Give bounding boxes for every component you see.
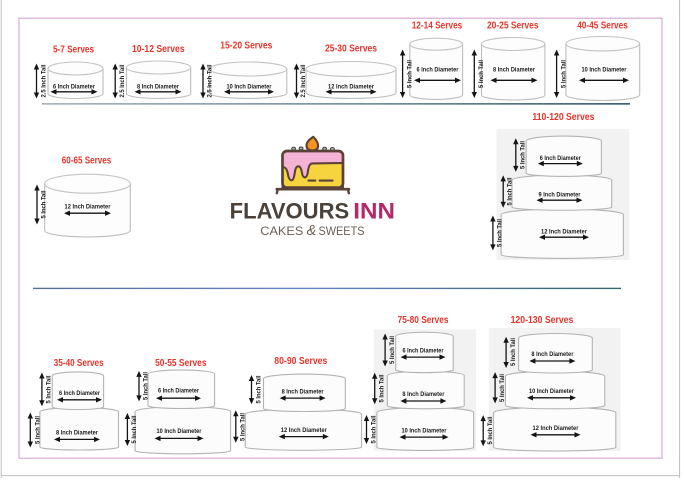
svg-text:FLAVOURS: FLAVOURS — [230, 199, 350, 224]
svg-text:12 Inch Diameter: 12 Inch Diameter — [328, 85, 375, 91]
svg-text:8 Inch Diameter: 8 Inch Diameter — [402, 392, 445, 398]
svg-text:5 Inch Tall: 5 Inch Tall — [561, 60, 567, 88]
svg-text:5 Inch Tall: 5 Inch Tall — [500, 374, 506, 402]
svg-text:8 Inch Diameter: 8 Inch Diameter — [137, 85, 180, 91]
svg-text:5 Inch Tall: 5 Inch Tall — [407, 60, 413, 88]
svg-text:INN: INN — [353, 199, 395, 224]
svg-text:6 Inch Diameter: 6 Inch Diameter — [59, 391, 101, 397]
svg-text:5 Inch Tall: 5 Inch Tall — [256, 375, 262, 403]
svg-text:6 Inch Diameter: 6 Inch Diameter — [540, 156, 582, 162]
svg-text:8 Inch Diameter: 8 Inch Diameter — [531, 352, 574, 358]
svg-text:5 Inch Tall: 5 Inch Tall — [511, 338, 517, 366]
svg-text:10 Inch Diameter: 10 Inch Diameter — [402, 429, 448, 435]
svg-text:12 Inch Diameter: 12 Inch Diameter — [533, 426, 580, 432]
svg-text:10-12 Serves: 10-12 Serves — [132, 44, 185, 55]
svg-text:6 Inch Diameter: 6 Inch Diameter — [417, 68, 460, 74]
svg-text:12-14 Serves: 12-14 Serves — [412, 21, 463, 32]
svg-text:5 Inch Tall: 5 Inch Tall — [520, 141, 526, 169]
svg-text:20-25 Serves: 20-25 Serves — [487, 21, 539, 32]
svg-text:5 Inch Tall: 5 Inch Tall — [35, 416, 41, 444]
svg-text:5 Inch Tall: 5 Inch Tall — [379, 374, 385, 402]
svg-text:110-120 Serves: 110-120 Serves — [532, 112, 594, 123]
svg-text:5 Inch Tall: 5 Inch Tall — [144, 372, 150, 400]
svg-text:8 Inch Diameter: 8 Inch Diameter — [493, 68, 536, 74]
svg-text:12 Inch Diameter: 12 Inch Diameter — [65, 205, 112, 211]
svg-text:10 Inch Diameter: 10 Inch Diameter — [582, 68, 628, 74]
svg-text:80-90 Serves: 80-90 Serves — [274, 356, 327, 367]
svg-text:5-7 Serves: 5-7 Serves — [53, 45, 94, 56]
svg-text:5 Inch Tall: 5 Inch Tall — [488, 416, 494, 444]
svg-text:5 Inch Tall: 5 Inch Tall — [42, 190, 48, 218]
svg-text:&: & — [307, 223, 317, 239]
svg-text:35-40 Serves: 35-40 Serves — [54, 358, 104, 369]
svg-text:15-20 Serves: 15-20 Serves — [220, 41, 272, 52]
svg-text:5 Inch Tall: 5 Inch Tall — [498, 219, 504, 247]
svg-text:2.5 Inch Tall: 2.5 Inch Tall — [41, 64, 47, 97]
svg-text:2.5 Inch Tall: 2.5 Inch Tall — [120, 64, 126, 97]
svg-text:75-80 Serves: 75-80 Serves — [398, 315, 449, 326]
svg-text:50-55 Serves: 50-55 Serves — [155, 358, 207, 369]
svg-text:6 Inch Diameter: 6 Inch Diameter — [158, 389, 200, 395]
svg-text:60-65 Serves: 60-65 Serves — [62, 156, 112, 167]
svg-text:12 Inch Diameter: 12 Inch Diameter — [281, 428, 328, 434]
svg-text:25-30 Serves: 25-30 Serves — [325, 44, 377, 55]
svg-text:10 Inch Diameter: 10 Inch Diameter — [157, 429, 203, 435]
svg-text:2.5 Inch Tall: 2.5 Inch Tall — [301, 64, 307, 97]
svg-text:8 Inch Diameter: 8 Inch Diameter — [56, 430, 99, 436]
svg-text:5 Inch Tall: 5 Inch Tall — [371, 415, 377, 443]
svg-text:SWEETS: SWEETS — [319, 225, 365, 238]
svg-text:8 Inch Diameter: 8 Inch Diameter — [282, 389, 325, 395]
svg-text:6 Inch Diameter: 6 Inch Diameter — [53, 85, 96, 91]
svg-text:5 Inch Tall: 5 Inch Tall — [241, 413, 247, 441]
svg-text:5 Inch Tall: 5 Inch Tall — [132, 415, 138, 443]
svg-text:CAKES: CAKES — [260, 225, 303, 238]
svg-text:10 Inch Diameter: 10 Inch Diameter — [529, 389, 575, 395]
svg-text:9 Inch Diameter: 9 Inch Diameter — [539, 193, 582, 199]
svg-text:40-45 Serves: 40-45 Serves — [577, 21, 628, 32]
svg-text:5 Inch Tall: 5 Inch Tall — [390, 336, 396, 364]
svg-text:6 Inch Diameter: 6 Inch Diameter — [403, 349, 445, 355]
svg-text:10 Inch Diameter: 10 Inch Diameter — [227, 85, 273, 91]
svg-text:120-130 Serves: 120-130 Serves — [511, 315, 574, 326]
svg-text:5 Inch Tall: 5 Inch Tall — [508, 177, 514, 205]
svg-text:5 Inch Tall: 5 Inch Tall — [479, 60, 485, 88]
svg-text:2.5 Inch Tall: 2.5 Inch Tall — [208, 64, 214, 97]
svg-text:5 Inch Tall: 5 Inch Tall — [46, 375, 52, 403]
svg-text:12 Inch Diameter: 12 Inch Diameter — [541, 230, 588, 236]
